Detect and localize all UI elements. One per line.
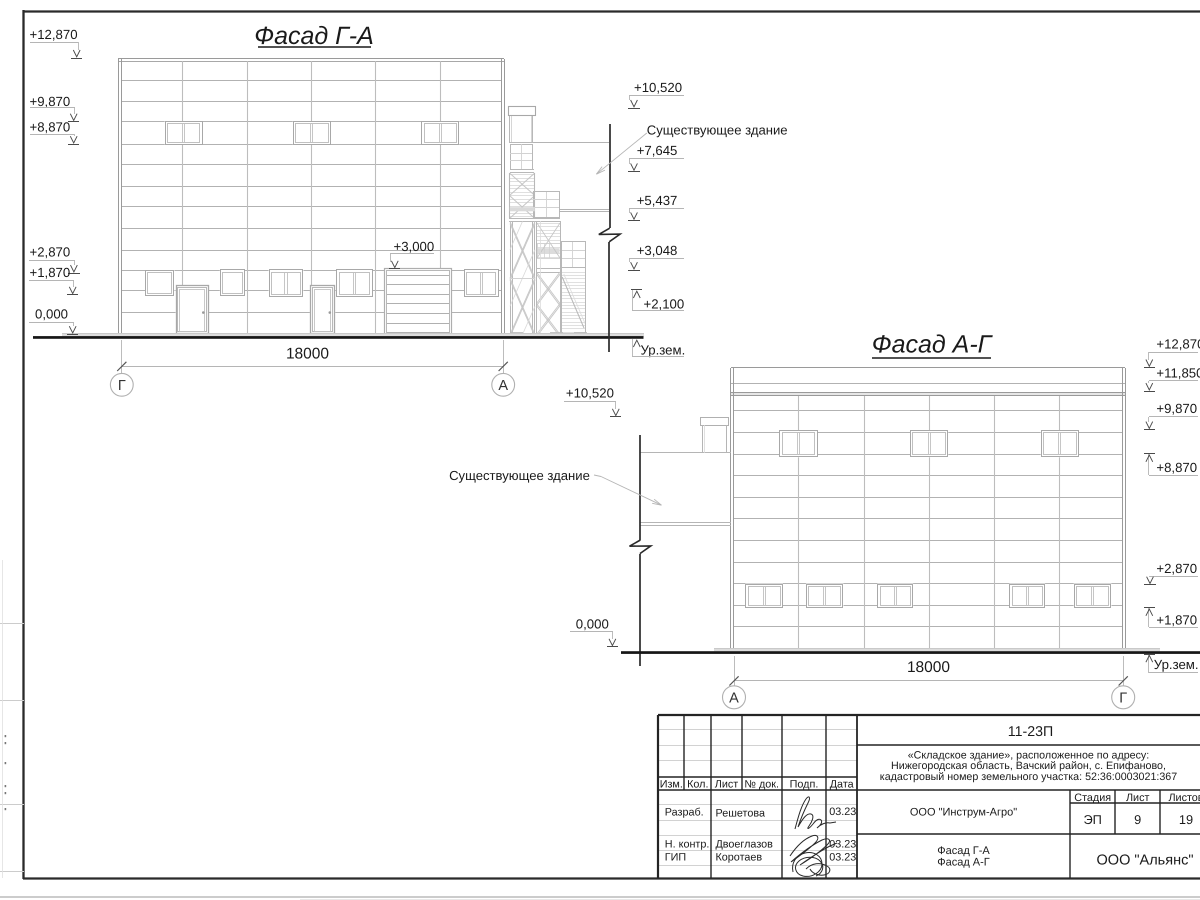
svg-text:11-23П: 11-23П <box>1008 724 1053 740</box>
svg-text:ООО "Инструм-Агро": ООО "Инструм-Агро" <box>910 807 1017 819</box>
svg-text:+8,870: +8,870 <box>30 120 71 135</box>
svg-text:+2,870: +2,870 <box>1156 561 1197 576</box>
svg-text:Изм.: Изм. <box>660 778 683 790</box>
svg-text:Н. контр.: Н. контр. <box>665 839 710 851</box>
svg-text:Ур.зем.: Ур.зем. <box>1154 657 1199 672</box>
svg-text:+2,870: +2,870 <box>30 244 71 259</box>
svg-text:Существующее здание: Существующее здание <box>449 468 590 483</box>
svg-text:кадастровый номер земельного у: кадастровый номер земельного участка: 52… <box>880 771 1177 783</box>
svg-text:03.23: 03.23 <box>829 852 856 864</box>
svg-text:Коротаев: Коротаев <box>716 852 763 864</box>
svg-text:+12,870: +12,870 <box>1156 337 1200 352</box>
svg-text:Ур.зем.: Ур.зем. <box>641 342 686 357</box>
svg-text:9: 9 <box>1134 812 1141 827</box>
svg-text:+12,870: +12,870 <box>30 27 78 42</box>
svg-text:+2,100: +2,100 <box>644 296 685 311</box>
svg-text:Фасад Г-А: Фасад Г-А <box>937 845 990 857</box>
svg-text:Лист: Лист <box>1126 792 1150 804</box>
svg-text:+11,850: +11,850 <box>1156 365 1200 380</box>
svg-text:Существующее здание: Существующее здание <box>647 123 788 138</box>
svg-text:+9,870: +9,870 <box>1156 401 1197 416</box>
svg-text:19: 19 <box>1179 812 1193 827</box>
svg-text:Кол.: Кол. <box>687 778 708 790</box>
svg-text:18000: 18000 <box>286 345 329 362</box>
svg-text:Разраб.: Разраб. <box>665 807 704 819</box>
svg-text:Фасад Г-А: Фасад Г-А <box>254 22 374 50</box>
svg-text:+1,870: +1,870 <box>30 265 71 280</box>
svg-text:Г: Г <box>1119 690 1127 706</box>
svg-text:+3,000: +3,000 <box>394 239 435 254</box>
svg-text:ЭП: ЭП <box>1083 812 1101 827</box>
svg-text:Двоеглазов: Двоеглазов <box>716 839 774 851</box>
svg-text:+5,437: +5,437 <box>637 193 678 208</box>
svg-text:Г: Г <box>118 378 126 394</box>
svg-text:Стадия: Стадия <box>1074 792 1111 804</box>
svg-text:+10,520: +10,520 <box>634 80 682 95</box>
svg-text:+3,048: +3,048 <box>637 243 678 258</box>
svg-text:+8,870: +8,870 <box>1156 460 1197 475</box>
svg-text:Подп.: Подп. <box>790 778 819 790</box>
svg-text:18000: 18000 <box>907 659 950 676</box>
svg-text:Решетова: Решетова <box>716 808 766 820</box>
svg-text:Листов: Листов <box>1168 792 1200 804</box>
svg-text:0,000: 0,000 <box>576 616 609 631</box>
svg-text:+1,870: +1,870 <box>1156 612 1197 627</box>
svg-text:А: А <box>729 690 739 706</box>
svg-text:А: А <box>498 378 508 394</box>
svg-text:Фасад А-Г: Фасад А-Г <box>872 331 994 359</box>
svg-text:ООО "Альянс": ООО "Альянс" <box>1097 852 1194 868</box>
svg-text:ГИП: ГИП <box>665 852 686 864</box>
svg-text:Дата: Дата <box>830 778 854 790</box>
svg-text:03.23: 03.23 <box>829 806 856 818</box>
svg-text:0,000: 0,000 <box>35 306 68 321</box>
svg-text:+7,645: +7,645 <box>637 143 678 158</box>
svg-text:Фасад А-Г: Фасад А-Г <box>937 856 990 868</box>
svg-text:Лист: Лист <box>715 778 739 790</box>
svg-text:+10,520: +10,520 <box>566 386 614 401</box>
svg-text:+9,870: +9,870 <box>30 94 71 109</box>
svg-text:№ док.: № док. <box>744 778 779 790</box>
